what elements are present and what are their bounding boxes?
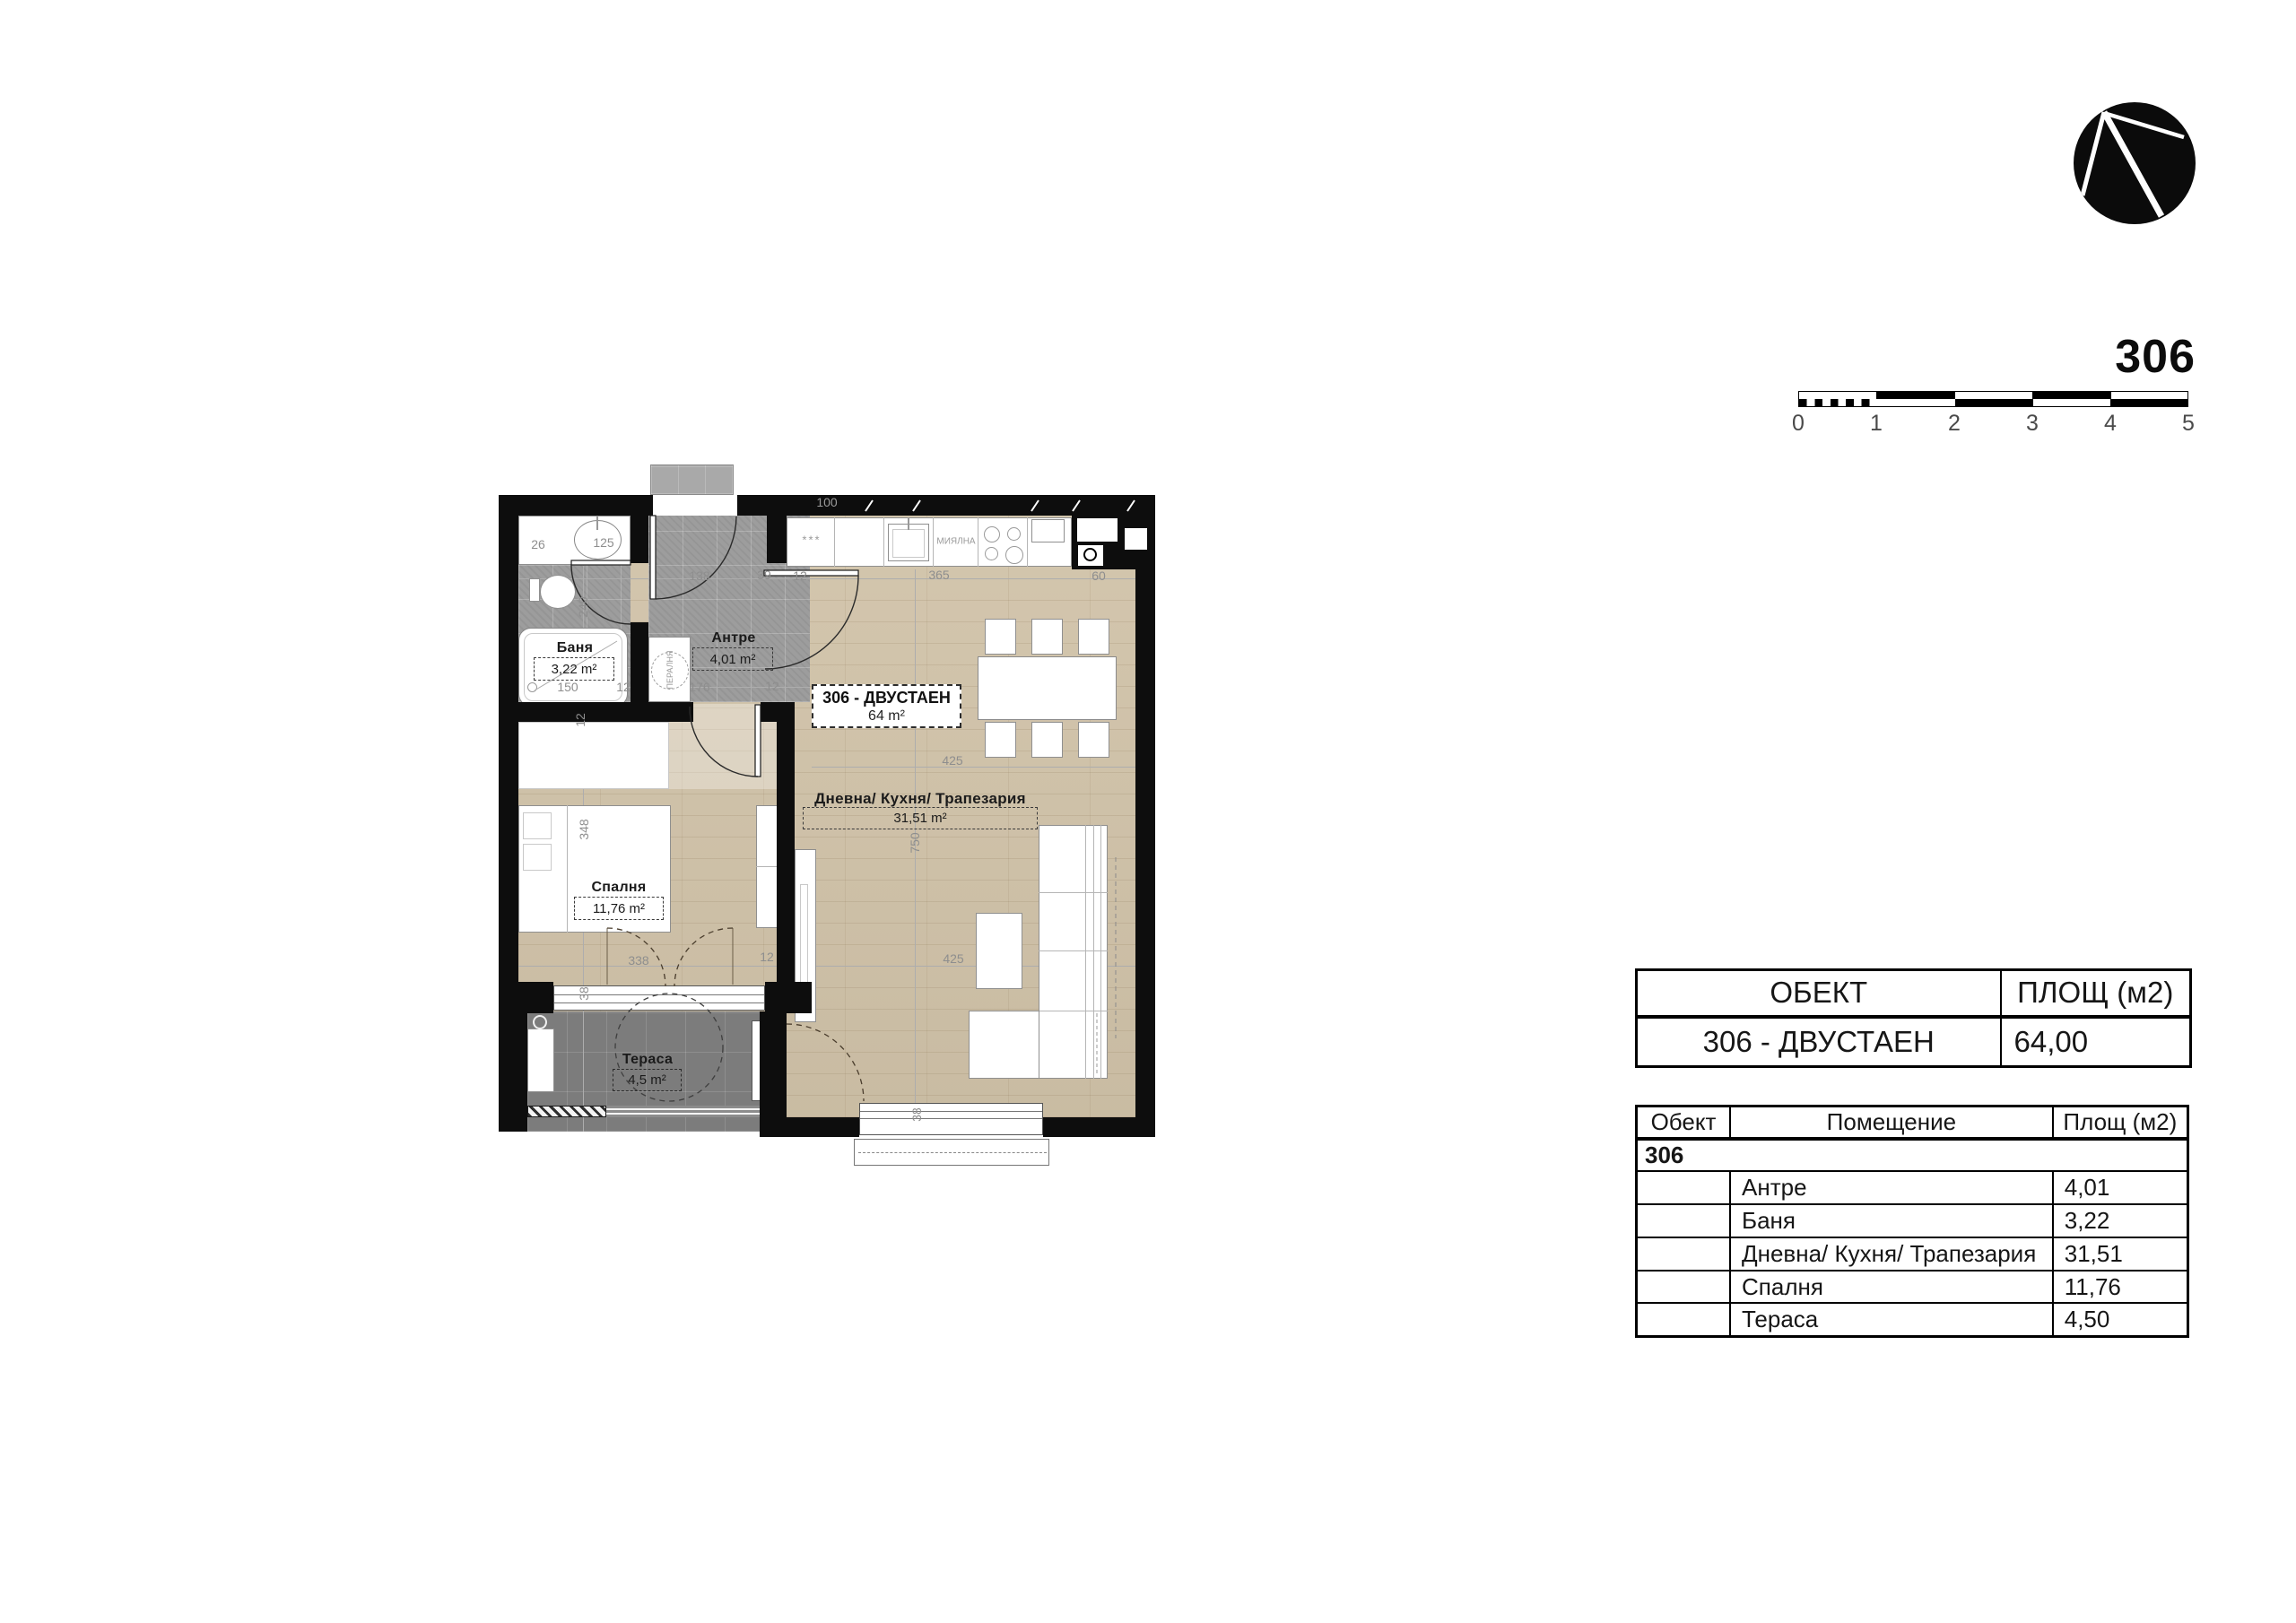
rooms-header-room: Помещение bbox=[1730, 1107, 2053, 1140]
dishwasher-label: МИЯЛНА bbox=[936, 537, 975, 547]
room-area-cell: 3,22 bbox=[2053, 1204, 2188, 1237]
kitchen-sink-basin bbox=[892, 529, 925, 558]
scale-label-4: 4 bbox=[2092, 411, 2128, 437]
rooms-table: Обект Помещение Площ (м2) 306 Антре 4,01… bbox=[1635, 1105, 2189, 1338]
window-sill bbox=[854, 1139, 1049, 1166]
kitchen-counter bbox=[787, 517, 1072, 567]
table-row: Дневна/ Кухня/ Трапезария 31,51 bbox=[1637, 1237, 2188, 1271]
chair bbox=[985, 619, 1016, 655]
bedroom-closet bbox=[518, 722, 669, 789]
dimension-label: 12 bbox=[760, 950, 774, 964]
living-window bbox=[859, 1103, 1043, 1135]
room-area-terrace: 4,5 m² bbox=[613, 1069, 682, 1091]
room-name-cell: Тераса bbox=[1730, 1303, 2053, 1336]
dimension-label: 365 bbox=[928, 568, 949, 582]
washer-label: ПЕРАЛНЯ bbox=[665, 651, 674, 690]
dimension-label: 125 bbox=[593, 535, 613, 550]
kitchen-module bbox=[1031, 519, 1065, 542]
room-label-bedroom: Спалня bbox=[591, 880, 646, 896]
room-name-cell: Дневна/ Кухня/ Трапезария bbox=[1730, 1237, 2053, 1271]
unit-label-line1: 306 - ДВУСТАЕН bbox=[822, 689, 951, 707]
room-area-cell: 4,01 bbox=[2053, 1171, 2188, 1204]
railing bbox=[606, 1106, 760, 1117]
burner-icon bbox=[984, 526, 1000, 542]
burner-icon bbox=[1005, 546, 1023, 564]
dimension-label: 425 bbox=[942, 753, 962, 768]
dimension-label: 60 bbox=[1091, 568, 1106, 583]
plan-sheet: 306 0 1 2 3 4 5 ОБЕКТ ПЛОЩ (м2) bbox=[0, 0, 2296, 1623]
tv-icon bbox=[800, 884, 808, 985]
wall bbox=[761, 702, 777, 722]
wall bbox=[499, 702, 693, 722]
rooms-header-area: Площ (м2) bbox=[2053, 1107, 2188, 1140]
table-row: Тераса 4,50 bbox=[1637, 1303, 2188, 1336]
summary-object-cell: 306 - ДВУСТАЕН bbox=[1637, 1017, 2001, 1067]
fridge-marks: *** bbox=[802, 534, 821, 547]
rooms-group-306: 306 bbox=[1637, 1139, 2188, 1171]
room-name-cell: Антре bbox=[1730, 1171, 2053, 1204]
chair bbox=[985, 722, 1016, 758]
room-area-hall: 4,01 m² bbox=[692, 647, 773, 671]
dimension-label: 338 bbox=[628, 953, 648, 968]
scale-bar-strip bbox=[1798, 391, 2188, 407]
room-area-bedroom: 11,76 m² bbox=[574, 897, 664, 920]
wall bbox=[777, 702, 795, 1013]
dimension-label: 12 bbox=[573, 713, 587, 727]
room-area-cell: 31,51 bbox=[2053, 1237, 2188, 1271]
dimension-label: 425 bbox=[943, 951, 963, 966]
dimension-label: 12 bbox=[765, 679, 779, 693]
shaft-cell bbox=[1077, 518, 1118, 542]
wall bbox=[499, 982, 553, 1013]
table-row: Баня 3,22 bbox=[1637, 1204, 2188, 1237]
room-area-cell: 11,76 bbox=[2053, 1271, 2188, 1303]
floor-plan: ПЕРАЛНЯ *** МИЯЛНА bbox=[499, 464, 1162, 1175]
wall-ticks bbox=[499, 464, 1162, 518]
kitchen-tap-icon bbox=[908, 517, 909, 530]
dimension-label: 12 bbox=[616, 680, 631, 694]
wall bbox=[1135, 516, 1155, 1137]
wall bbox=[767, 516, 787, 563]
room-name-cell: Баня bbox=[1730, 1204, 2053, 1237]
chair bbox=[1078, 722, 1109, 758]
dimension-label: 38 bbox=[577, 986, 591, 1001]
shaft-pipe-icon bbox=[1083, 548, 1097, 561]
dimension-label: 348 bbox=[577, 819, 591, 839]
dimension-label: 138 bbox=[689, 568, 709, 583]
room-label-hall: Антре bbox=[711, 630, 755, 647]
dimension-label: 750 bbox=[908, 832, 922, 853]
dining-table bbox=[978, 656, 1117, 720]
terrace-cabinet bbox=[527, 1028, 554, 1092]
pillow-icon bbox=[523, 844, 552, 871]
rooms-header-object: Обект bbox=[1637, 1107, 1731, 1140]
scale-label-2: 2 bbox=[1936, 411, 1972, 437]
scale-label-1: 1 bbox=[1858, 411, 1894, 437]
scale-label-0: 0 bbox=[1780, 411, 1816, 437]
room-area-living: 31,51 m² bbox=[803, 807, 1038, 829]
dimension-label: 39 bbox=[757, 568, 771, 582]
sofa-corner bbox=[969, 1011, 1039, 1079]
table-row: Антре 4,01 bbox=[1637, 1171, 2188, 1204]
railing-hatch bbox=[527, 1106, 606, 1117]
drain-icon bbox=[533, 1015, 547, 1029]
dimension-label: 12 bbox=[793, 568, 807, 583]
summary-header-object: ОБЕКТ bbox=[1637, 970, 2001, 1017]
dimension-label: 150 bbox=[557, 680, 578, 694]
dimension-label: 100 bbox=[816, 495, 837, 509]
summary-header-area: ПЛОЩ (м2) bbox=[2001, 970, 2191, 1017]
chair bbox=[1031, 619, 1063, 655]
wall bbox=[760, 1011, 787, 1132]
room-label-living: Дневна/ Кухня/ Трапезария bbox=[814, 790, 1026, 808]
burner-icon bbox=[1007, 527, 1021, 541]
dimension-label: 240 bbox=[576, 596, 590, 617]
scale-label-5: 5 bbox=[2170, 411, 2206, 437]
summary-area-cell: 64,00 bbox=[2001, 1017, 2191, 1067]
pillow-icon bbox=[523, 812, 552, 839]
toilet-icon bbox=[540, 575, 576, 609]
wall bbox=[631, 622, 648, 702]
room-area-cell: 4,50 bbox=[2053, 1303, 2188, 1336]
room-name-cell: Спалня bbox=[1730, 1271, 2053, 1303]
dimension-label: 176 bbox=[689, 680, 709, 694]
burner-icon bbox=[985, 547, 998, 560]
room-label-terrace: Тераса bbox=[622, 1052, 673, 1068]
dimension-label: 26 bbox=[531, 537, 545, 551]
wall bbox=[765, 982, 812, 1013]
sofa bbox=[1039, 825, 1108, 1079]
unit-label-box: 306 - ДВУСТАЕН 64 m² bbox=[812, 684, 961, 728]
wall bbox=[1043, 1117, 1155, 1137]
dimension-chain-line bbox=[518, 578, 1135, 579]
wall bbox=[631, 516, 648, 563]
coffee-table bbox=[976, 913, 1022, 989]
table-row: Спалня 11,76 bbox=[1637, 1271, 2188, 1303]
studio-logo-icon bbox=[2067, 97, 2202, 231]
scale-label-3: 3 bbox=[2014, 411, 2050, 437]
wall bbox=[499, 1011, 527, 1132]
dimension-label: 38 bbox=[909, 1107, 924, 1122]
apartment-number: 306 bbox=[2016, 330, 2196, 384]
shaft-cell bbox=[1125, 528, 1147, 550]
chair bbox=[1031, 722, 1063, 758]
toilet-tank-icon bbox=[529, 578, 540, 602]
room-area-bathroom: 3,22 m² bbox=[534, 657, 614, 681]
unit-label-line2: 64 m² bbox=[868, 708, 905, 725]
room-label-bathroom: Баня bbox=[557, 640, 594, 656]
summary-table: ОБЕКТ ПЛОЩ (м2) 306 - ДВУСТАЕН 64,00 bbox=[1635, 968, 2192, 1068]
scale-bar: 0 1 2 3 4 5 bbox=[1798, 387, 2193, 443]
dimension-chain-line bbox=[812, 767, 1135, 768]
chair bbox=[1078, 619, 1109, 655]
